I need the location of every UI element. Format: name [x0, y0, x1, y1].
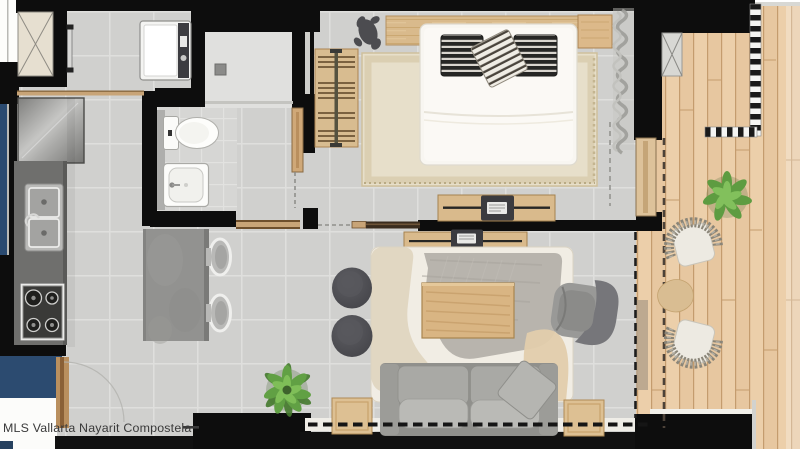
svg-text:MLS Vallarta Nayarit Compostel: MLS Vallarta Nayarit Compostela: [3, 421, 191, 435]
